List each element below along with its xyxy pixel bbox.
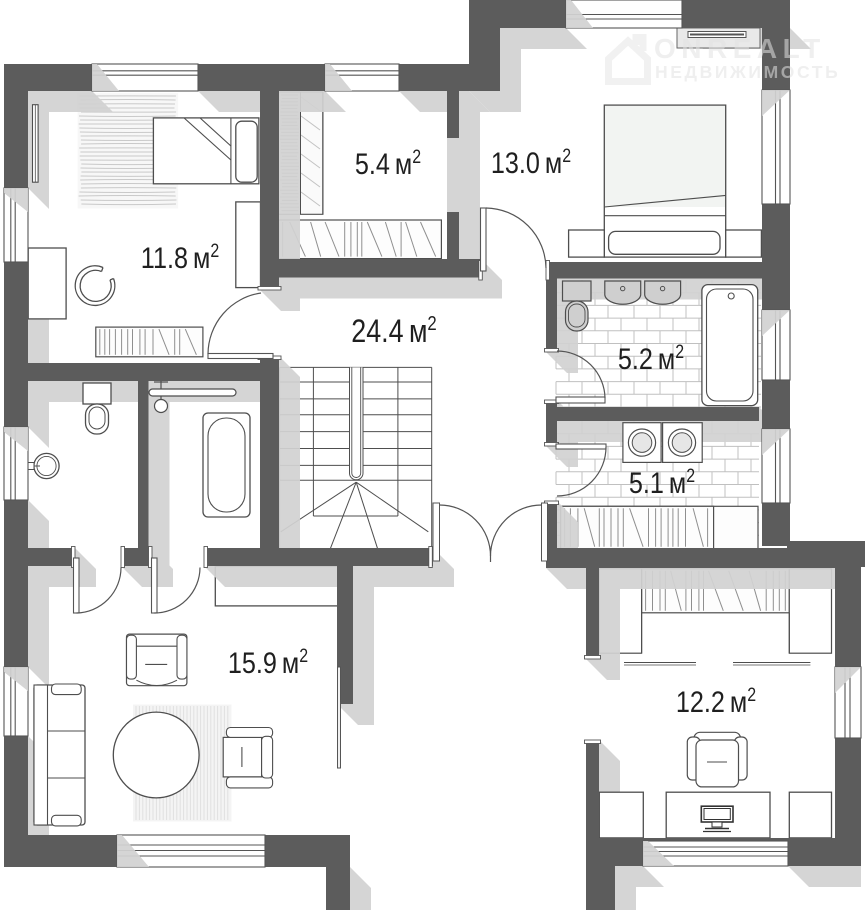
svg-text:ONREALT: ONREALT	[654, 33, 826, 64]
svg-text:5.4 м2: 5.4 м2	[355, 146, 421, 181]
svg-text:5.2 м2: 5.2 м2	[618, 341, 684, 376]
svg-text:15.9 м2: 15.9 м2	[228, 645, 308, 680]
svg-text:13.0 м2: 13.0 м2	[491, 145, 571, 180]
svg-text:24.4 м2: 24.4 м2	[351, 312, 437, 350]
svg-text:11.8 м2: 11.8 м2	[141, 240, 219, 275]
svg-text:12.2 м2: 12.2 м2	[676, 684, 756, 719]
svg-text:НЕДВИЖИМОСТЬ: НЕДВИЖИМОСТЬ	[655, 62, 840, 82]
svg-text:5.1 м2: 5.1 м2	[629, 465, 695, 500]
